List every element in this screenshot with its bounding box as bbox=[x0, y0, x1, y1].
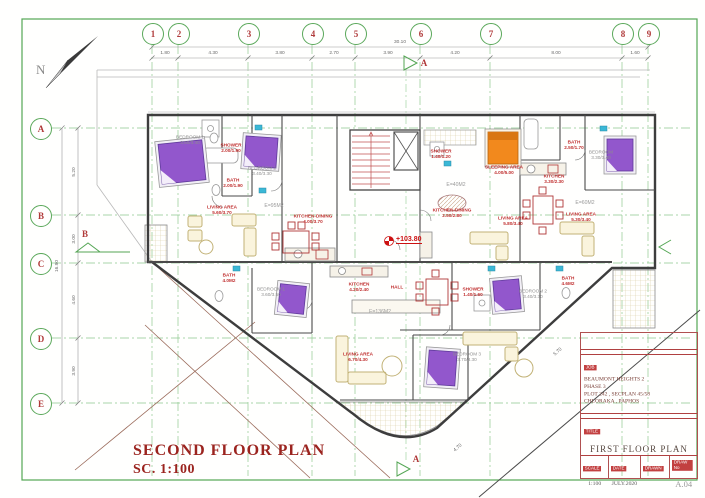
dimension-label: 2.70 bbox=[329, 51, 338, 56]
dimension-label: 4.30 bbox=[208, 51, 217, 56]
area-label: E=60M2 bbox=[575, 200, 594, 205]
area-label: E=136M2 bbox=[369, 309, 391, 314]
total-width-dim: 30.10 bbox=[394, 40, 406, 45]
section-marker-label: B bbox=[82, 229, 88, 239]
room-label: KITCHEN-DINING4.00/3.70 bbox=[294, 214, 333, 225]
north-label: N bbox=[36, 62, 45, 78]
room-label: SLEEPING AREA4.00/5.00 bbox=[485, 165, 523, 176]
grid-bubble-row: A bbox=[30, 118, 52, 140]
room-label: LIVING AREA5.60/3.70 bbox=[207, 205, 237, 216]
grid-bubble-row: E bbox=[30, 393, 52, 415]
grid-bubble-col: 2 bbox=[168, 23, 190, 45]
drawing-title-line1: SECOND FLOOR PLAN bbox=[133, 441, 325, 461]
number-cell: DRAW No A.04 bbox=[670, 456, 697, 478]
grid-bubble-row: C bbox=[30, 253, 52, 275]
room-label: LIVING AREA6.70/4.30 bbox=[343, 352, 373, 363]
room-label: SHOWER2.00/1.90 bbox=[220, 143, 241, 154]
room-label: BATH4.6M2 bbox=[561, 276, 574, 287]
room-label: HALL bbox=[391, 285, 403, 291]
scale-cell: SCALE 1:100 bbox=[581, 456, 609, 478]
dimension-label: 1.80 bbox=[160, 51, 169, 56]
title-block-cells: SCALE 1:100 DATE JULY.2020 DRAWN DRAW No… bbox=[581, 455, 697, 478]
dimension-label: 5.20 bbox=[72, 167, 77, 176]
room-label: SHOWER1.40/1.20 bbox=[430, 149, 451, 160]
room-label: KITCHEN3.30/2.30 bbox=[544, 174, 565, 185]
grid-bubble-col: 7 bbox=[480, 23, 502, 45]
dimension-label: 3.90 bbox=[72, 366, 77, 375]
drawing-sheet: 30.10 16.90 N +103.80 SECOND FLOOR PLAN … bbox=[0, 0, 705, 498]
dimension-label: 1.60 bbox=[630, 51, 639, 56]
dimension-label: 4.70 bbox=[453, 443, 463, 453]
room-label: SHOWER1.40/1.60 bbox=[462, 287, 483, 298]
grid-bubble-col: 8 bbox=[612, 23, 634, 45]
grid-bubble-col: 1 bbox=[142, 23, 164, 45]
room-label: BEDROOM 13.50/3.40 bbox=[176, 135, 204, 146]
grid-bubble-row: B bbox=[30, 205, 52, 227]
room-label: BEDROOM 23.40/3.30 bbox=[519, 289, 547, 300]
dimension-label: 4.60 bbox=[72, 295, 77, 304]
room-label: LIVING AREA5.80/3.40 bbox=[498, 216, 528, 227]
project-info: JOB BEAUMONT HEIGHTS 2 PHASE 3 PLOT 242 … bbox=[581, 355, 697, 413]
room-label: BEDROOM 33.70/3.30 bbox=[453, 352, 481, 363]
grid-bubble-row: D bbox=[30, 328, 52, 350]
section-marker-label: A bbox=[413, 454, 420, 464]
room-label: KITCHEN4.20/2.40 bbox=[349, 282, 370, 293]
grid-bubble-col: 6 bbox=[410, 23, 432, 45]
project-tag: JOB bbox=[584, 365, 596, 370]
grid-bubble-col: 4 bbox=[302, 23, 324, 45]
dimension-label: 5.70 bbox=[553, 347, 563, 357]
grid-bubble-col: 5 bbox=[345, 23, 367, 45]
room-label: BATH2.00/1.90 bbox=[223, 178, 243, 189]
drawing-title: SECOND FLOOR PLAN SC. 1:100 bbox=[133, 441, 325, 479]
title-block: JOB BEAUMONT HEIGHTS 2 PHASE 3 PLOT 242 … bbox=[580, 332, 698, 479]
total-height-dim: 16.90 bbox=[55, 260, 60, 272]
room-label: BATH2.50/1.70 bbox=[564, 140, 584, 151]
level-label: +103.80 bbox=[396, 236, 422, 244]
area-label: E=95M2 bbox=[264, 203, 283, 208]
project-line: PLOT 242 , SECPLAN 45/58 bbox=[584, 391, 685, 398]
section-marker-label: A bbox=[421, 58, 428, 68]
dimension-label: 3.90 bbox=[383, 51, 392, 56]
title-block-empty-row bbox=[581, 333, 697, 349]
project-line: CHLORAKA , PAPHOS bbox=[584, 398, 685, 405]
project-line: BEAUMONT HEIGHTS 2 bbox=[584, 376, 685, 383]
area-label: E=40M2 bbox=[446, 182, 465, 187]
room-label: KITCHEN-DINING2.50/2.80 bbox=[433, 208, 472, 219]
room-label: BATH4.0M2 bbox=[222, 273, 235, 284]
room-label: BEDROOM 23.40/3.30 bbox=[248, 166, 276, 177]
grid-bubble-col: 3 bbox=[238, 23, 260, 45]
dimension-label: 3.80 bbox=[275, 51, 284, 56]
grid-bubble-col: 9 bbox=[638, 23, 660, 45]
sheet-drawing-title: FIRST FLOOR PLAN bbox=[584, 444, 694, 454]
drawing-name-box: TITLE FIRST FLOOR PLAN bbox=[581, 419, 697, 455]
room-label: BEDROOM3.30/3.40 bbox=[589, 150, 613, 161]
dimension-label: 8.00 bbox=[551, 51, 560, 56]
dimension-label: 4.20 bbox=[450, 51, 459, 56]
date-cell: DATE JULY.2020 bbox=[609, 456, 641, 478]
drawing-scale: SC. 1:100 bbox=[133, 461, 325, 479]
dimension-label: 3.00 bbox=[72, 234, 77, 243]
project-line: PHASE 3 bbox=[584, 383, 685, 390]
room-label: BEDROOM 13.60/3.50 bbox=[257, 287, 285, 298]
title-tag: TITLE bbox=[584, 429, 600, 434]
room-label: LIVING AREA5.30/3.40 bbox=[566, 212, 596, 223]
drawn-cell: DRAWN bbox=[641, 456, 669, 478]
